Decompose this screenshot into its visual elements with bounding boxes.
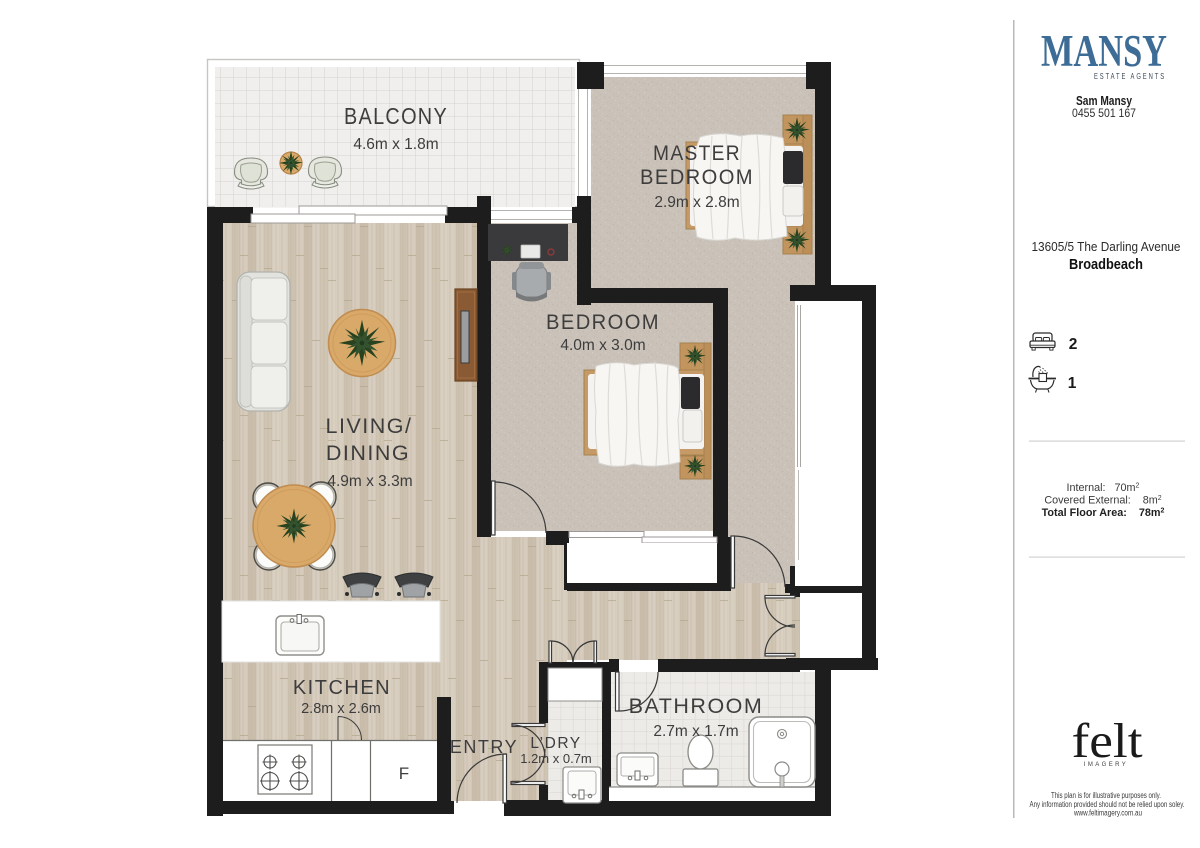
svg-text:1: 1 bbox=[1068, 375, 1077, 392]
svg-text:BATHROOM: BATHROOM bbox=[629, 694, 764, 718]
svg-text:13605/5 The Darling Avenue: 13605/5 The Darling Avenue bbox=[1032, 239, 1181, 254]
svg-text:BALCONY: BALCONY bbox=[344, 103, 448, 129]
svg-text:www.feltimagery.com.au: www.feltimagery.com.au bbox=[1073, 809, 1142, 818]
svg-text:ESTATE AGENTS: ESTATE AGENTS bbox=[1094, 71, 1166, 81]
svg-text:LIVING/: LIVING/ bbox=[326, 414, 413, 438]
svg-text:KITCHEN: KITCHEN bbox=[293, 677, 391, 699]
svg-text:Total Floor Area: 78m2: Total Floor Area: 78m2 bbox=[1042, 507, 1165, 519]
svg-text:BEDROOM: BEDROOM bbox=[640, 165, 754, 189]
svg-text:L’DRY: L’DRY bbox=[530, 735, 581, 752]
svg-text:2.8m x 2.6m: 2.8m x 2.6m bbox=[301, 701, 381, 717]
svg-text:ENTRY: ENTRY bbox=[450, 737, 518, 757]
svg-text:4.0m x 3.0m: 4.0m x 3.0m bbox=[560, 337, 645, 354]
svg-text:2: 2 bbox=[1069, 336, 1078, 353]
svg-text:felt: felt bbox=[1072, 713, 1143, 768]
svg-text:2.7m x 1.7m: 2.7m x 1.7m bbox=[653, 723, 738, 740]
svg-text:1.2m x 0.7m: 1.2m x 0.7m bbox=[520, 751, 592, 766]
svg-text:BEDROOM: BEDROOM bbox=[546, 310, 660, 334]
svg-text:0455 501 167: 0455 501 167 bbox=[1072, 106, 1136, 120]
svg-text:Broadbeach: Broadbeach bbox=[1069, 256, 1143, 273]
svg-text:F: F bbox=[399, 764, 409, 783]
svg-text:MANSY: MANSY bbox=[1041, 26, 1167, 76]
svg-text:2.9m x 2.8m: 2.9m x 2.8m bbox=[654, 194, 739, 211]
svg-text:4.6m x 1.8m: 4.6m x 1.8m bbox=[353, 136, 438, 153]
svg-text:DINING: DINING bbox=[326, 441, 410, 465]
svg-text:Internal: 70m2: Internal: 70m2 bbox=[1067, 482, 1140, 494]
svg-text:Covered External: 8m2: Covered External: 8m2 bbox=[1044, 495, 1161, 507]
svg-text:MASTER: MASTER bbox=[653, 141, 741, 165]
svg-text:This plan is for illustrative: This plan is for illustrative purposes o… bbox=[1051, 791, 1161, 800]
svg-text:IMAGERY: IMAGERY bbox=[1084, 762, 1128, 768]
svg-text:4.9m x 3.3m: 4.9m x 3.3m bbox=[327, 473, 412, 490]
